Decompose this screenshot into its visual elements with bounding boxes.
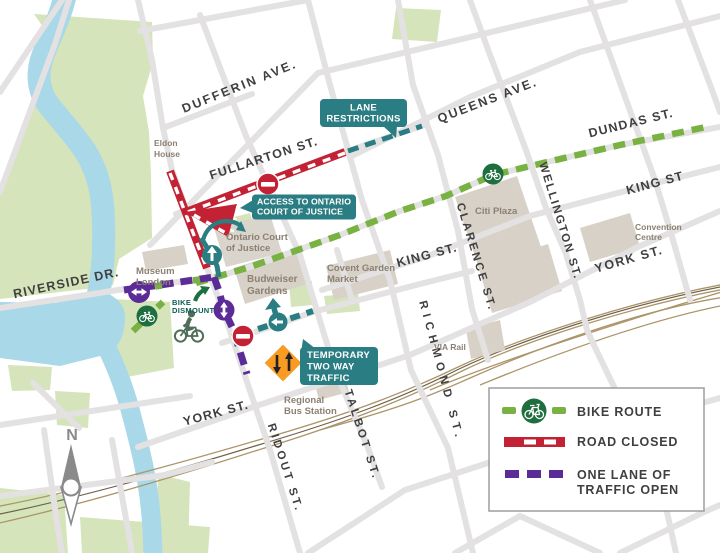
svg-text:Gardens: Gardens [247,286,288,297]
svg-text:Covent Garden: Covent Garden [327,263,395,274]
svg-text:ROAD CLOSED: ROAD CLOSED [577,435,678,449]
svg-text:COURT OF JUSTICE: COURT OF JUSTICE [257,207,343,217]
svg-text:Citi Plaza: Citi Plaza [475,206,518,217]
svg-text:House: House [154,149,180,159]
svg-text:Bus Station: Bus Station [284,406,337,417]
svg-text:Budweiser: Budweiser [247,274,298,285]
svg-text:LANE: LANE [350,103,377,114]
svg-text:VIA Rail: VIA Rail [434,342,466,352]
svg-text:BIKE ROUTE: BIKE ROUTE [577,405,662,419]
svg-text:DISMOUNT: DISMOUNT [172,306,215,315]
svg-text:RESTRICTIONS: RESTRICTIONS [326,114,400,125]
svg-text:TRAFFIC: TRAFFIC [307,373,350,384]
svg-text:N: N [66,427,78,444]
svg-text:ONE LANE OF: ONE LANE OF [577,468,671,482]
svg-text:Regional: Regional [284,395,324,406]
svg-text:ACCESS TO ONTARIO: ACCESS TO ONTARIO [257,197,351,207]
svg-text:Eldon: Eldon [154,138,178,148]
svg-text:Market: Market [327,274,358,285]
svg-text:Convention: Convention [635,222,682,232]
svg-text:Museum: Museum [136,266,175,277]
svg-text:Ontario Court: Ontario Court [226,232,289,243]
svg-text:Centre: Centre [635,232,662,242]
svg-text:TWO WAY: TWO WAY [307,362,355,373]
svg-text:TEMPORARY: TEMPORARY [307,350,370,361]
svg-text:of Justice: of Justice [226,243,270,254]
svg-text:TRAFFIC OPEN: TRAFFIC OPEN [577,483,679,497]
svg-text:London: London [136,277,171,288]
